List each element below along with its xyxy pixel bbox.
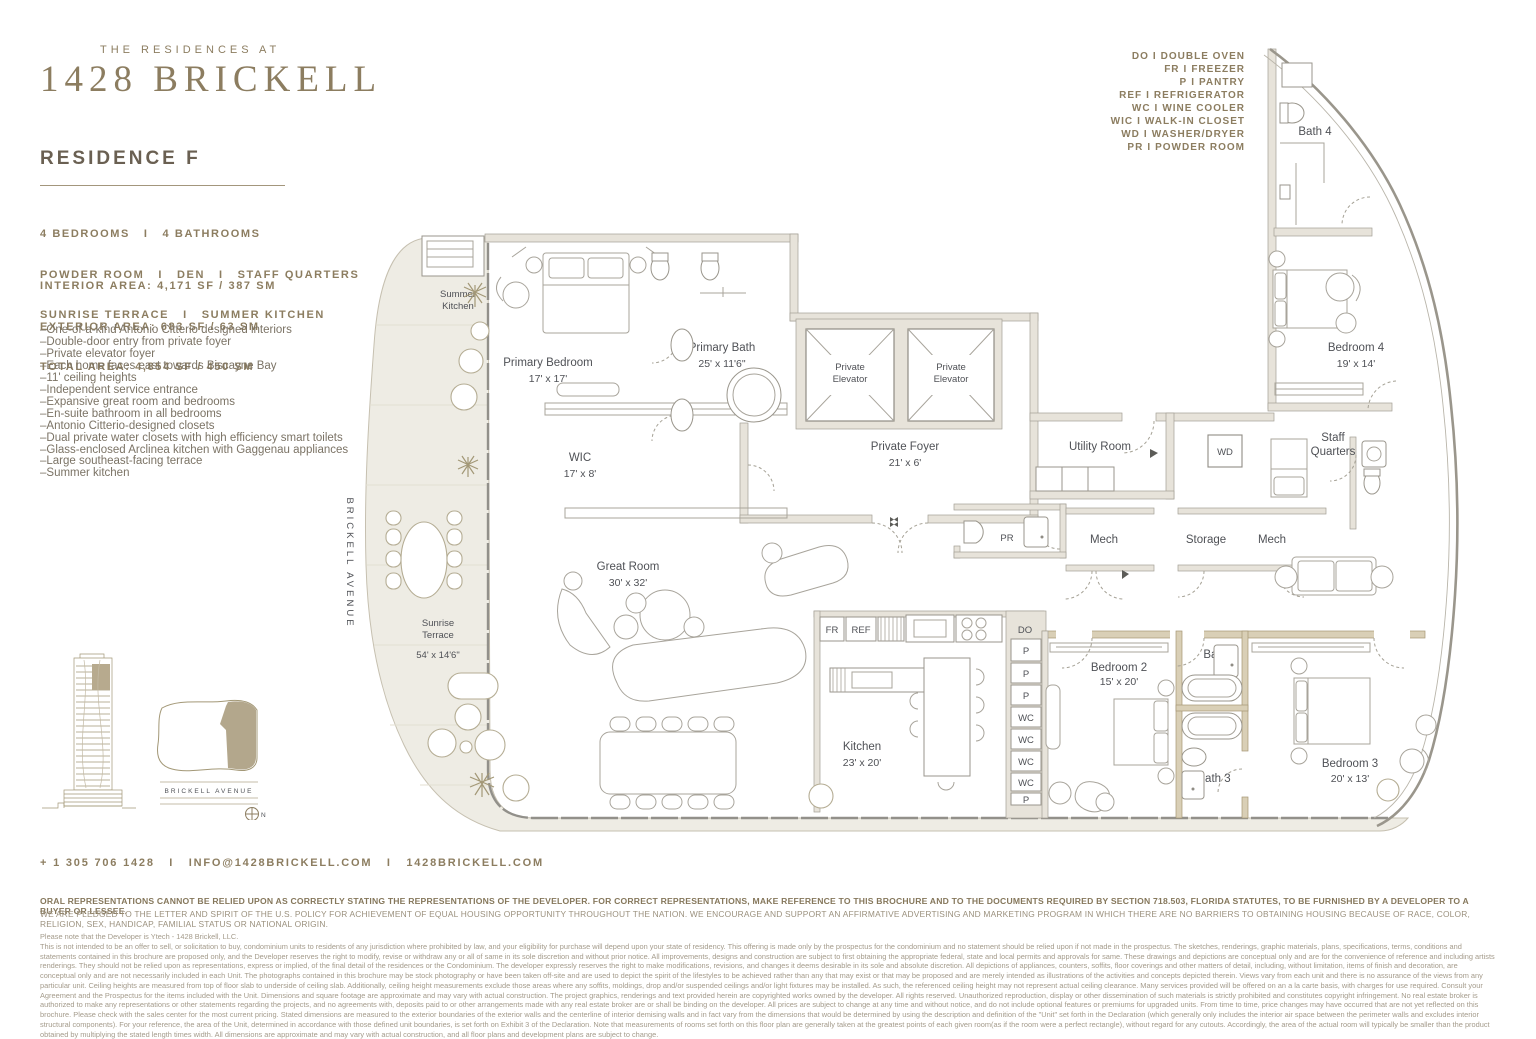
elevator-label: Private — [936, 362, 966, 373]
building-elevation-icon — [42, 654, 136, 808]
svg-text:Elevator: Elevator — [934, 374, 969, 385]
svg-text:Quarters: Quarters — [1311, 446, 1356, 458]
den-staff-furniture — [1271, 439, 1393, 595]
svg-text:17' x 8': 17' x 8' — [564, 468, 597, 480]
feature-item: –En-suite bathroom in all bedrooms — [40, 409, 348, 421]
keyplan-street-label: BRICKELL AVENUE — [165, 788, 254, 795]
primary-bath-label: Primary Bath — [689, 342, 755, 354]
svg-text:Kitchen: Kitchen — [442, 301, 474, 312]
street-label: BRICKELL AVENUE — [344, 497, 355, 628]
utility-room-label: Utility Room — [1069, 441, 1131, 453]
bedroom3-label: Bedroom 3 — [1322, 758, 1378, 770]
developer-note: Please note that the Developer is Ytech … — [40, 932, 238, 941]
bath4-label: Bath 4 — [1298, 126, 1332, 138]
fine-print-body: This is not intended to be an offer to s… — [40, 942, 1495, 1039]
unit-keyplan-icon: BRICKELL AVENUE N — [158, 700, 266, 820]
private-foyer-label: Private Foyer — [871, 441, 940, 453]
svg-text:WD: WD — [1217, 447, 1233, 458]
svg-text:P: P — [1023, 646, 1029, 657]
svg-text:WC: WC — [1018, 713, 1034, 724]
wic-label: WIC — [569, 452, 591, 464]
svg-text:WC: WC — [1018, 778, 1034, 789]
bedroom2-label: Bedroom 2 — [1091, 662, 1147, 674]
contact-line[interactable]: + 1 305 706 1428 I INFO@1428BRICKELL.COM… — [40, 857, 544, 869]
pantry-wine-column: P P P WC WC WC WC P — [1011, 639, 1041, 806]
mech-label: Mech — [1090, 534, 1118, 546]
washer-dryer: WD — [1208, 435, 1242, 467]
svg-text:Terrace: Terrace — [422, 630, 454, 641]
kitchen-label: Kitchen — [843, 741, 881, 753]
fair-housing-statement: WE ARE PLEDGED TO THE LETTER AND SPIRIT … — [40, 909, 1500, 929]
feature-item: –Independent service entrance — [40, 385, 348, 397]
program-line: 4 BEDROOMS I 4 BATHROOMS — [40, 228, 359, 242]
svg-text:WC: WC — [1018, 735, 1034, 746]
kitchen-island — [830, 658, 984, 790]
primary-bedroom-label: Primary Bedroom — [503, 357, 592, 369]
compass-icon: N — [246, 808, 267, 821]
great-room-furniture — [558, 543, 849, 809]
svg-text:30' x 32': 30' x 32' — [609, 577, 647, 589]
title-divider — [40, 185, 285, 186]
mech-label: Mech — [1258, 534, 1286, 546]
feature-item: –Expansive great room and bedrooms — [40, 397, 348, 409]
feature-item: –Summer kitchen — [40, 468, 348, 480]
staff-quarters-label: Staff — [1321, 432, 1345, 444]
svg-text:P: P — [1023, 691, 1029, 702]
svg-text:WC: WC — [1018, 757, 1034, 768]
sunrise-terrace-label: Sunrise — [422, 618, 454, 629]
svg-text:25' x 11'6": 25' x 11'6" — [698, 358, 746, 370]
svg-text:N: N — [261, 812, 266, 819]
svg-text:DO: DO — [1018, 625, 1032, 636]
svg-text:15' x 20': 15' x 20' — [1100, 676, 1138, 688]
svg-text:P: P — [1023, 669, 1029, 680]
fine-print: Please note that the Developer is Ytech … — [40, 932, 1495, 1039]
svg-text:21' x 6': 21' x 6' — [889, 457, 922, 469]
bedroom4-label: Bedroom 4 — [1328, 342, 1385, 354]
feature-item: –11' ceiling heights — [40, 373, 348, 385]
svg-text:Elevator: Elevator — [833, 374, 868, 385]
elevator-label: Private — [835, 362, 865, 373]
location-key: BRICKELL AVENUE N — [40, 640, 300, 820]
brochure-page: { "brand": {"pre": "THE RESIDENCES AT", … — [0, 0, 1536, 1024]
area-line: INTERIOR AREA: 4,171 SF / 387 SM — [40, 280, 276, 294]
svg-text:20' x 13': 20' x 13' — [1331, 773, 1369, 785]
brand-tagline: THE RESIDENCES AT — [100, 44, 280, 56]
svg-text:23' x 20': 23' x 20' — [843, 757, 881, 769]
svg-text:19' x 14': 19' x 14' — [1337, 358, 1375, 370]
storage-label: Storage — [1186, 534, 1226, 546]
svg-text:REF: REF — [852, 625, 871, 636]
svg-text:P: P — [1023, 795, 1029, 806]
great-room-label: Great Room — [597, 561, 660, 573]
feature-list: –One-of-a-kind Antonio Citterio designed… — [40, 325, 348, 480]
feature-item: –Antonio Citterio-designed closets — [40, 421, 348, 433]
floor-plan: Summer Kitchen BRICKELL AVENUE — [330, 25, 1530, 870]
powder-room-label: PR — [1000, 533, 1013, 544]
feature-item: –Dual private water closets with high ef… — [40, 433, 348, 445]
svg-text:FR: FR — [826, 625, 839, 636]
svg-text:54' x 14'6": 54' x 14'6" — [416, 650, 459, 661]
kitchen-appliances: FR REF DO — [820, 615, 1032, 642]
page-title: RESIDENCE F — [40, 148, 201, 170]
